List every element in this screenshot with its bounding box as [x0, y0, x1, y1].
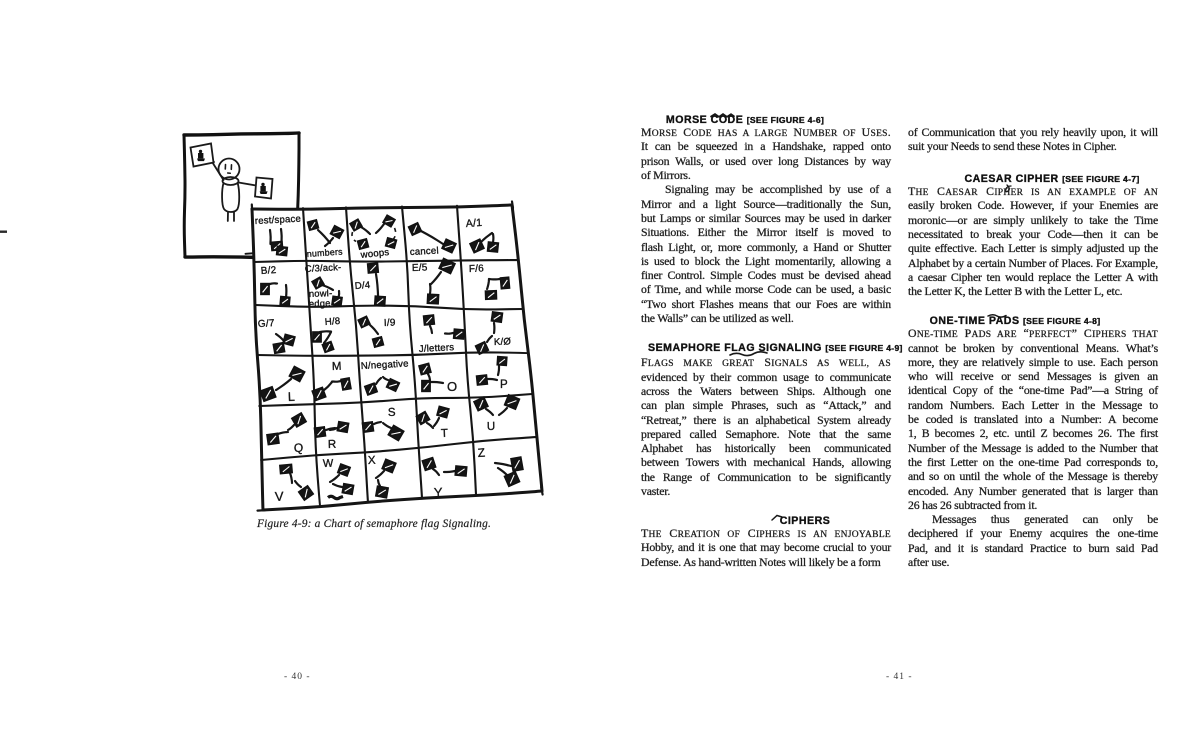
svg-text:Q: Q: [294, 441, 304, 455]
svg-text:J/letters: J/letters: [419, 342, 455, 355]
svg-text:Z: Z: [477, 446, 485, 460]
svg-text:W: W: [323, 458, 334, 470]
svg-text:U: U: [487, 421, 496, 433]
svg-text:A/1: A/1: [465, 217, 482, 230]
svg-text:F/6: F/6: [469, 263, 485, 275]
svg-text:H/8: H/8: [324, 316, 340, 328]
svg-text:G/7: G/7: [258, 318, 276, 330]
svg-text:X: X: [368, 455, 376, 467]
svg-text:M: M: [332, 361, 342, 373]
svg-text:Y: Y: [434, 485, 444, 500]
svg-text:T: T: [441, 428, 449, 440]
svg-text:R: R: [328, 439, 337, 451]
svg-text:cancel: cancel: [410, 245, 439, 257]
svg-text:E/5: E/5: [412, 262, 428, 274]
svg-text:edge: edge: [309, 297, 331, 309]
svg-text:C/3/ack-: C/3/ack-: [305, 261, 342, 274]
svg-text:I/9: I/9: [384, 317, 397, 329]
svg-text:O: O: [447, 379, 457, 394]
svg-text:S: S: [388, 407, 396, 419]
svg-text:P: P: [500, 379, 508, 391]
svg-text:K/Ø: K/Ø: [494, 336, 512, 348]
svg-text:B/2: B/2: [260, 265, 277, 277]
svg-text:L: L: [288, 390, 296, 404]
svg-text:V: V: [275, 489, 285, 504]
svg-text:D/4: D/4: [354, 280, 371, 292]
